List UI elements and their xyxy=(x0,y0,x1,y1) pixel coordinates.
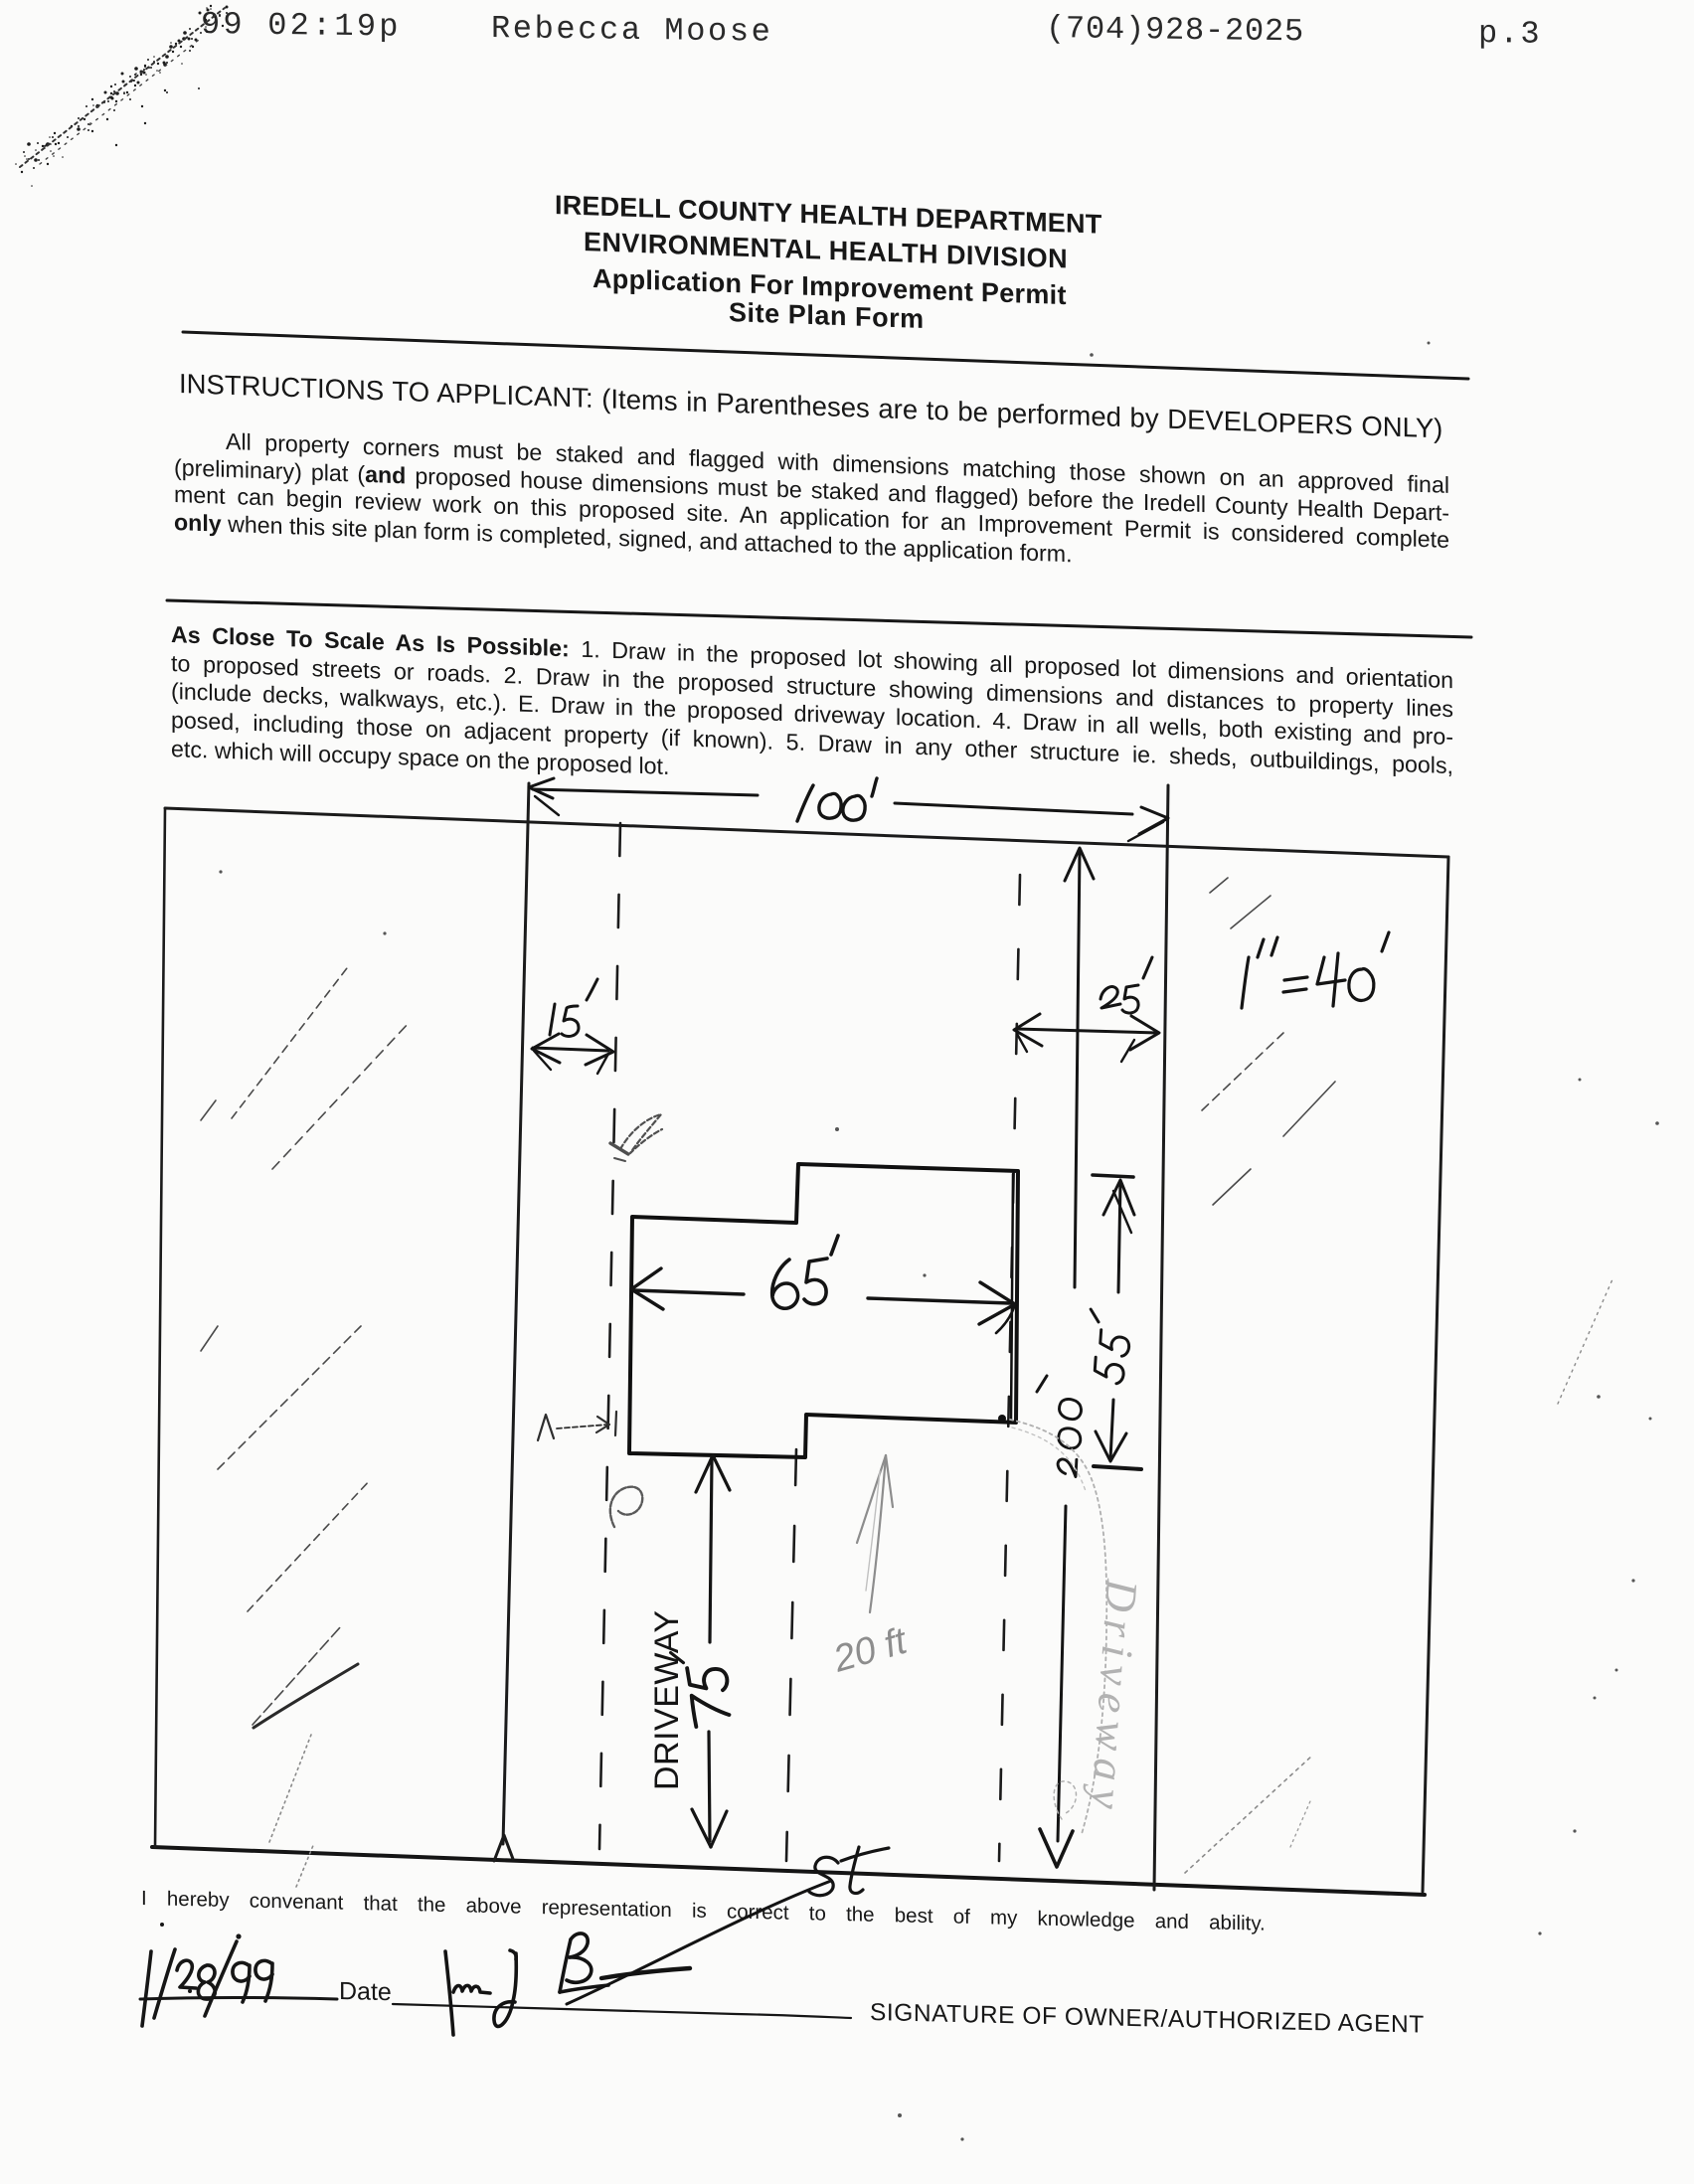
svg-text:Driveway: Driveway xyxy=(1081,1577,1147,1818)
svg-text:20 ft: 20 ft xyxy=(828,1620,913,1681)
svg-text:DRIVEWAY: DRIVEWAY xyxy=(648,1609,686,1790)
